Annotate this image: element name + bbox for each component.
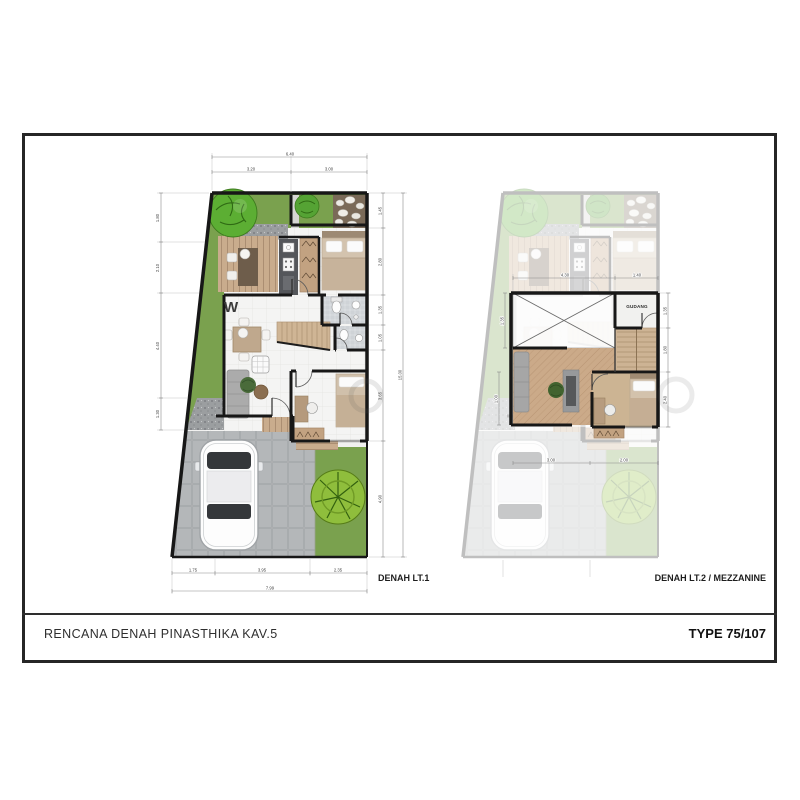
svg-text:3.20: 3.20: [247, 167, 256, 172]
svg-text:6.40: 6.40: [286, 152, 295, 157]
svg-text:1.35: 1.35: [663, 306, 668, 315]
bathroom-1: [323, 296, 367, 324]
person-icon: [605, 405, 616, 416]
car: [195, 440, 263, 550]
svg-text:1.05: 1.05: [378, 333, 383, 342]
car-rear-window: [207, 504, 251, 519]
svg-text:1.40: 1.40: [633, 273, 642, 278]
stove-icon: [283, 258, 294, 271]
tree-icon: [209, 189, 257, 237]
sink-icon: [355, 334, 362, 341]
master-bed: [322, 231, 367, 290]
svg-text:1.30: 1.30: [155, 409, 160, 418]
mezz-bed: [630, 374, 658, 425]
car-windshield: [207, 452, 251, 469]
person-icon: [238, 328, 248, 338]
svg-text:4.90: 4.90: [378, 494, 383, 503]
coffee-table: [252, 356, 269, 373]
wardrobe-hall: [300, 238, 318, 292]
tree-icon: [311, 470, 365, 524]
svg-text:1.80: 1.80: [663, 345, 668, 354]
car-roof: [207, 471, 251, 502]
tv-console: [563, 370, 579, 412]
floor-plan-lt1-content: [172, 189, 367, 557]
wardrobe: [294, 428, 324, 440]
bathroom-2: [335, 326, 367, 349]
person-icon: [307, 403, 318, 414]
svg-text:3.95: 3.95: [258, 568, 267, 573]
svg-text:1.35: 1.35: [500, 316, 505, 325]
svg-text:2.35: 2.35: [334, 568, 343, 573]
work-deck: [218, 236, 278, 292]
side-table: [254, 385, 268, 399]
mezz-sofa: [514, 352, 529, 412]
drawing-sheet-canvas: RENCANA DENAH PINASTHIKA KAV.5 TYPE 75/1…: [0, 0, 800, 800]
desk: [295, 396, 308, 422]
mezz-wardrobe: [594, 427, 624, 438]
stairs: [615, 328, 658, 372]
plan-label-lt1: DENAH LT.1: [378, 573, 429, 583]
svg-text:1.00: 1.00: [494, 394, 499, 403]
svg-text:1.80: 1.80: [155, 213, 160, 222]
sink-icon: [352, 301, 360, 309]
svg-text:3.00: 3.00: [325, 167, 334, 172]
svg-text:3.00: 3.00: [547, 458, 556, 463]
pillow: [326, 241, 342, 252]
kitchen: [279, 239, 298, 295]
pillow: [347, 241, 363, 252]
mezzanine-level: GUDANG: [511, 291, 658, 438]
tree-icon: [295, 194, 319, 218]
svg-text:2.00: 2.00: [620, 458, 629, 463]
svg-text:4.30: 4.30: [561, 273, 570, 278]
svg-text:4.40: 4.40: [155, 341, 160, 350]
svg-text:15.00: 15.00: [398, 369, 403, 380]
watermark-w: W: [224, 299, 239, 316]
svg-text:2.10: 2.10: [155, 263, 160, 272]
stone-garden: [333, 195, 367, 228]
svg-text:1.45: 1.45: [378, 206, 383, 215]
svg-text:7.99: 7.99: [266, 586, 275, 591]
gudang-room: [615, 293, 658, 328]
plan-label-lt2: DENAH LT.2 / MEZZANINE: [655, 573, 766, 583]
plant-icon: [548, 382, 564, 398]
svg-text:2.80: 2.80: [378, 257, 383, 266]
gudang-label: GUDANG: [626, 304, 648, 309]
person-icon: [240, 249, 250, 259]
entry-deck: [262, 417, 294, 432]
floor-plans-drawing: GUDANG: [0, 0, 800, 800]
svg-text:1.35: 1.35: [378, 305, 383, 314]
void-area: [513, 293, 615, 348]
toilet-icon: [332, 301, 341, 313]
svg-text:1.75: 1.75: [189, 568, 198, 573]
